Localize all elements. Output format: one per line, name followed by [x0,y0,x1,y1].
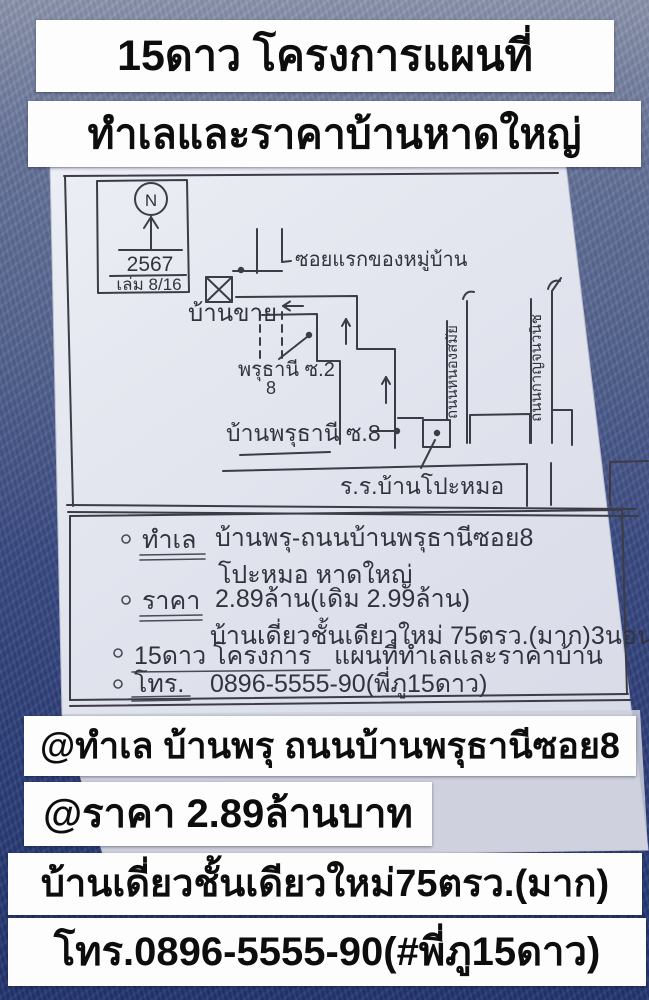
banner-project-title: 15ดาว โครงการแผนที่ [36,20,614,92]
banner-phone: โทร.0896-5555-90(#พี่ภู15ดาว) [8,918,646,986]
note-heading-phone: โทร. [134,669,184,698]
banner-subtitle: ทำเลและราคาบ้านหาดใหญ่ [28,101,641,167]
ban-phruthani-soi8-label: บ้านพรุธานี ซ.8 [226,420,381,447]
school-label: ร.ร.บ้านโปะหมอ [340,473,504,499]
compass-year: 2567 [127,253,174,276]
house-for-sale-label: บ้านขาย [188,300,277,327]
road-left-vertical-label: ถนนหนองสมัย [444,325,461,419]
banner-location: @ทำเล บ้านพรุ ถนนบ้านพรุธานีซอย8 [24,716,636,776]
note-heading-location: ทำเล [142,526,196,554]
compass-book-ref: เล่ม 8/16 [116,275,181,294]
phruthani-soi2-label: พรุธานี ซ.2 [238,359,335,382]
phruthani-soi2-number: 8 [266,378,276,398]
banner-price: @ราคา 2.89ล้านบาท [24,782,432,846]
north-label: N [145,191,157,210]
note-heading-project: 15ดาว โครงการ [134,641,311,670]
road-right-vertical-label: ถนนกาญจนวนิช [528,314,545,422]
banner-house-detail: บ้านเดี่ยวชั้นเดียวใหม่75ตรว.(มาก) [8,853,642,915]
note-text-price: 2.89ล้าน(เดิม 2.99ล้าน) [215,585,470,613]
note-text-location: บ้านพรุ-ถนนบ้านพรุธานีซอย8 [215,524,533,553]
flyer-photo: { "header": { "title_line1": "15ดาว โครง… [0,0,649,1000]
first-soi-label: ซอยแรกของหมู่บ้าน [295,249,468,272]
note-heading-price: ราคา [142,587,200,615]
note-text-phone: 0896-5555-90(พี่ภู15ดาว) [210,666,487,699]
note-text-project: แผนที่ทำเลและราคาบ้าน [334,638,603,670]
